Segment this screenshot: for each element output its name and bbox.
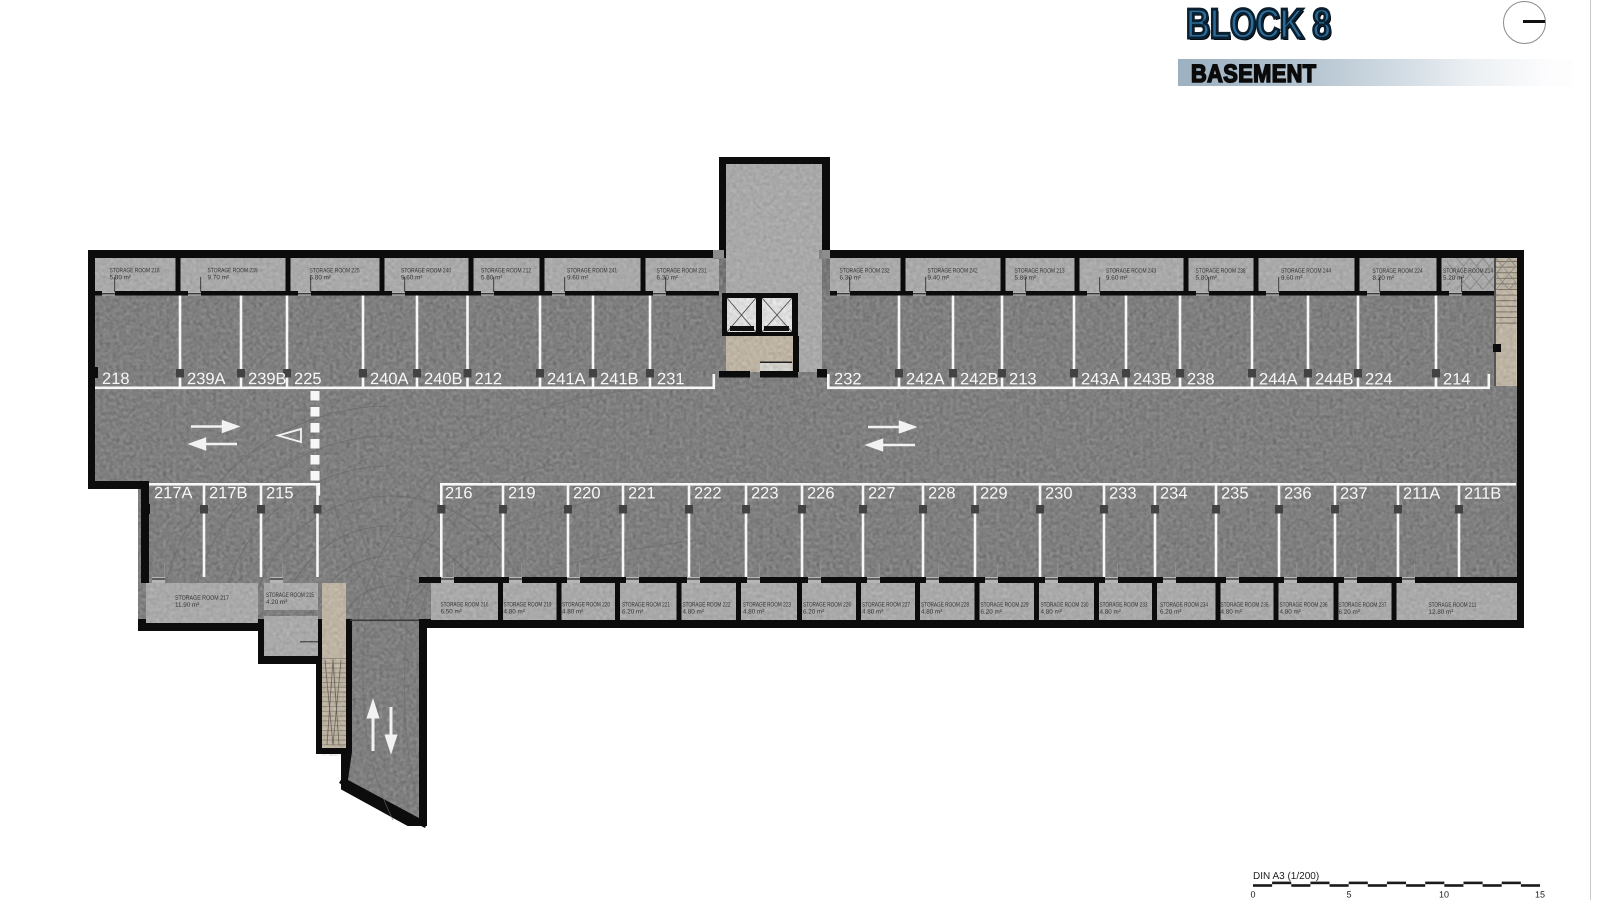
svg-text:6.50 m²: 6.50 m² [440,608,461,615]
svg-text:STORAGE ROOM 233: STORAGE ROOM 233 [1099,602,1147,609]
svg-text:STORAGE ROOM 239: STORAGE ROOM 239 [208,267,258,274]
svg-text:0: 0 [1250,890,1255,900]
svg-text:240B: 240B [424,370,463,388]
svg-text:4.80 m²: 4.80 m² [921,609,942,616]
svg-text:STORAGE ROOM 229: STORAGE ROOM 229 [980,602,1028,609]
svg-text:211B: 211B [1464,485,1501,503]
svg-text:5.80 m²: 5.80 m² [481,274,502,281]
svg-text:STORAGE ROOM 211: STORAGE ROOM 211 [1428,602,1476,609]
svg-text:STORAGE ROOM 240: STORAGE ROOM 240 [401,267,451,274]
svg-text:15: 15 [1535,890,1545,900]
svg-text:8.20 m²: 8.20 m² [1373,275,1394,282]
svg-text:242A: 242A [906,370,945,388]
svg-text:6.20 m²: 6.20 m² [622,608,643,615]
svg-text:4.80 m²: 4.80 m² [562,608,583,615]
svg-text:STORAGE ROOM 225: STORAGE ROOM 225 [310,267,360,274]
svg-text:9.60 m²: 9.60 m² [401,274,422,281]
svg-text:STORAGE ROOM 227: STORAGE ROOM 227 [862,602,910,609]
svg-text:224: 224 [1365,370,1393,388]
svg-text:6.20 m²: 6.20 m² [980,609,1001,616]
svg-text:238: 238 [1187,370,1215,388]
svg-text:9.70 m²: 9.70 m² [208,274,229,281]
svg-text:213: 213 [1009,370,1037,388]
svg-text:5.80 m²: 5.80 m² [1015,275,1036,282]
svg-text:5.80 m²: 5.80 m² [310,274,331,281]
svg-text:STORAGE ROOM 231: STORAGE ROOM 231 [657,267,707,274]
svg-text:225: 225 [294,370,322,388]
svg-text:4.80 m²: 4.80 m² [1279,609,1300,616]
svg-text:10: 10 [1439,890,1449,900]
svg-text:STORAGE ROOM 212: STORAGE ROOM 212 [481,267,531,274]
svg-text:STORAGE ROOM 213: STORAGE ROOM 213 [1015,268,1065,275]
svg-text:4.20 m²: 4.20 m² [266,599,287,606]
svg-text:STORAGE ROOM 224: STORAGE ROOM 224 [1373,268,1423,275]
svg-text:5.80 m²: 5.80 m² [110,274,131,281]
svg-text:STORAGE ROOM 228: STORAGE ROOM 228 [921,602,969,609]
svg-text:235: 235 [1221,485,1249,503]
svg-text:244B: 244B [1315,370,1354,388]
svg-text:241A: 241A [547,370,586,388]
svg-text:4.80 m²: 4.80 m² [682,608,703,615]
svg-text:9.60 m²: 9.60 m² [1106,275,1127,282]
svg-text:6.20 m²: 6.20 m² [803,609,824,616]
svg-text:233: 233 [1109,485,1137,503]
svg-text:6.20 m²: 6.20 m² [1160,609,1181,616]
svg-text:9.60 m²: 9.60 m² [1281,275,1302,282]
svg-text:243B: 243B [1133,370,1172,388]
svg-text:227: 227 [868,485,896,503]
svg-text:236: 236 [1284,485,1312,503]
svg-text:STORAGE ROOM 235: STORAGE ROOM 235 [1220,602,1268,609]
svg-text:228: 228 [928,485,956,503]
svg-text:STORAGE ROOM 217: STORAGE ROOM 217 [175,595,229,602]
svg-text:212: 212 [475,370,503,388]
svg-text:STORAGE ROOM 232: STORAGE ROOM 232 [840,268,890,275]
svg-text:STORAGE ROOM 220: STORAGE ROOM 220 [562,601,610,608]
svg-text:12.80 m²: 12.80 m² [1428,609,1453,616]
svg-text:STORAGE ROOM 244: STORAGE ROOM 244 [1281,268,1331,275]
svg-text:STORAGE ROOM 216: STORAGE ROOM 216 [440,601,488,608]
svg-text:6.20 m²: 6.20 m² [1338,609,1359,616]
svg-text:217B: 217B [209,484,248,502]
svg-text:9.60 m²: 9.60 m² [567,274,588,281]
svg-text:226: 226 [807,485,835,503]
svg-text:237: 237 [1340,485,1368,503]
svg-text:218: 218 [102,370,130,388]
svg-text:STORAGE ROOM 242: STORAGE ROOM 242 [928,268,978,275]
svg-text:6.30 m²: 6.30 m² [657,274,678,281]
svg-text:STORAGE ROOM 214: STORAGE ROOM 214 [1443,268,1493,275]
svg-text:DIN A3 (1/200): DIN A3 (1/200) [1253,871,1319,882]
svg-text:211A: 211A [1403,485,1440,503]
svg-text:216: 216 [445,484,473,502]
svg-text:STORAGE ROOM 221: STORAGE ROOM 221 [622,601,670,608]
svg-text:242B: 242B [960,370,999,388]
svg-text:STORAGE ROOM 219: STORAGE ROOM 219 [503,601,551,608]
svg-text:221: 221 [628,484,656,502]
svg-text:6.30 m²: 6.30 m² [840,275,861,282]
svg-text:232: 232 [834,370,862,388]
svg-text:STORAGE ROOM 223: STORAGE ROOM 223 [743,601,791,608]
svg-text:4.80 m²: 4.80 m² [1040,609,1061,616]
svg-text:215: 215 [266,484,294,502]
svg-text:4.80 m²: 4.80 m² [743,608,764,615]
svg-text:11.90 m²: 11.90 m² [175,602,199,609]
svg-text:4.80 m²: 4.80 m² [1220,609,1241,616]
svg-text:STORAGE ROOM 241: STORAGE ROOM 241 [567,267,617,274]
svg-text:5: 5 [1346,890,1351,900]
svg-text:229: 229 [980,485,1008,503]
svg-text:5.20 m²: 5.20 m² [1443,275,1464,282]
svg-text:234: 234 [1160,485,1188,503]
svg-text:4.80 m²: 4.80 m² [1099,609,1120,616]
svg-text:231: 231 [657,370,685,388]
svg-text:STORAGE ROOM 222: STORAGE ROOM 222 [682,601,730,608]
svg-text:219: 219 [508,484,536,502]
svg-text:239B: 239B [248,370,287,388]
svg-text:STORAGE ROOM 243: STORAGE ROOM 243 [1106,268,1156,275]
svg-text:STORAGE ROOM 215: STORAGE ROOM 215 [266,592,314,599]
svg-text:243A: 243A [1081,370,1120,388]
svg-text:STORAGE ROOM 237: STORAGE ROOM 237 [1338,602,1386,609]
svg-text:214: 214 [1443,371,1471,389]
svg-text:223: 223 [751,484,779,502]
svg-text:9.40 m²: 9.40 m² [928,275,949,282]
svg-text:240A: 240A [370,370,409,388]
svg-text:241B: 241B [600,370,639,388]
svg-text:5.80 m²: 5.80 m² [1196,275,1217,282]
svg-text:STORAGE ROOM 236: STORAGE ROOM 236 [1279,602,1327,609]
svg-text:220: 220 [573,484,601,502]
svg-text:222: 222 [694,484,722,502]
svg-text:STORAGE ROOM 218: STORAGE ROOM 218 [110,267,160,274]
svg-text:217A: 217A [154,484,193,502]
svg-text:4.80 m²: 4.80 m² [503,608,524,615]
svg-text:4.80 m²: 4.80 m² [862,609,883,616]
svg-text:244A: 244A [1259,370,1298,388]
svg-text:STORAGE ROOM 230: STORAGE ROOM 230 [1040,602,1088,609]
svg-text:STORAGE ROOM 234: STORAGE ROOM 234 [1160,602,1208,609]
svg-text:STORAGE ROOM 226: STORAGE ROOM 226 [803,602,851,609]
svg-text:STORAGE ROOM 238: STORAGE ROOM 238 [1196,268,1246,275]
svg-text:230: 230 [1045,485,1073,503]
svg-text:239A: 239A [187,370,226,388]
